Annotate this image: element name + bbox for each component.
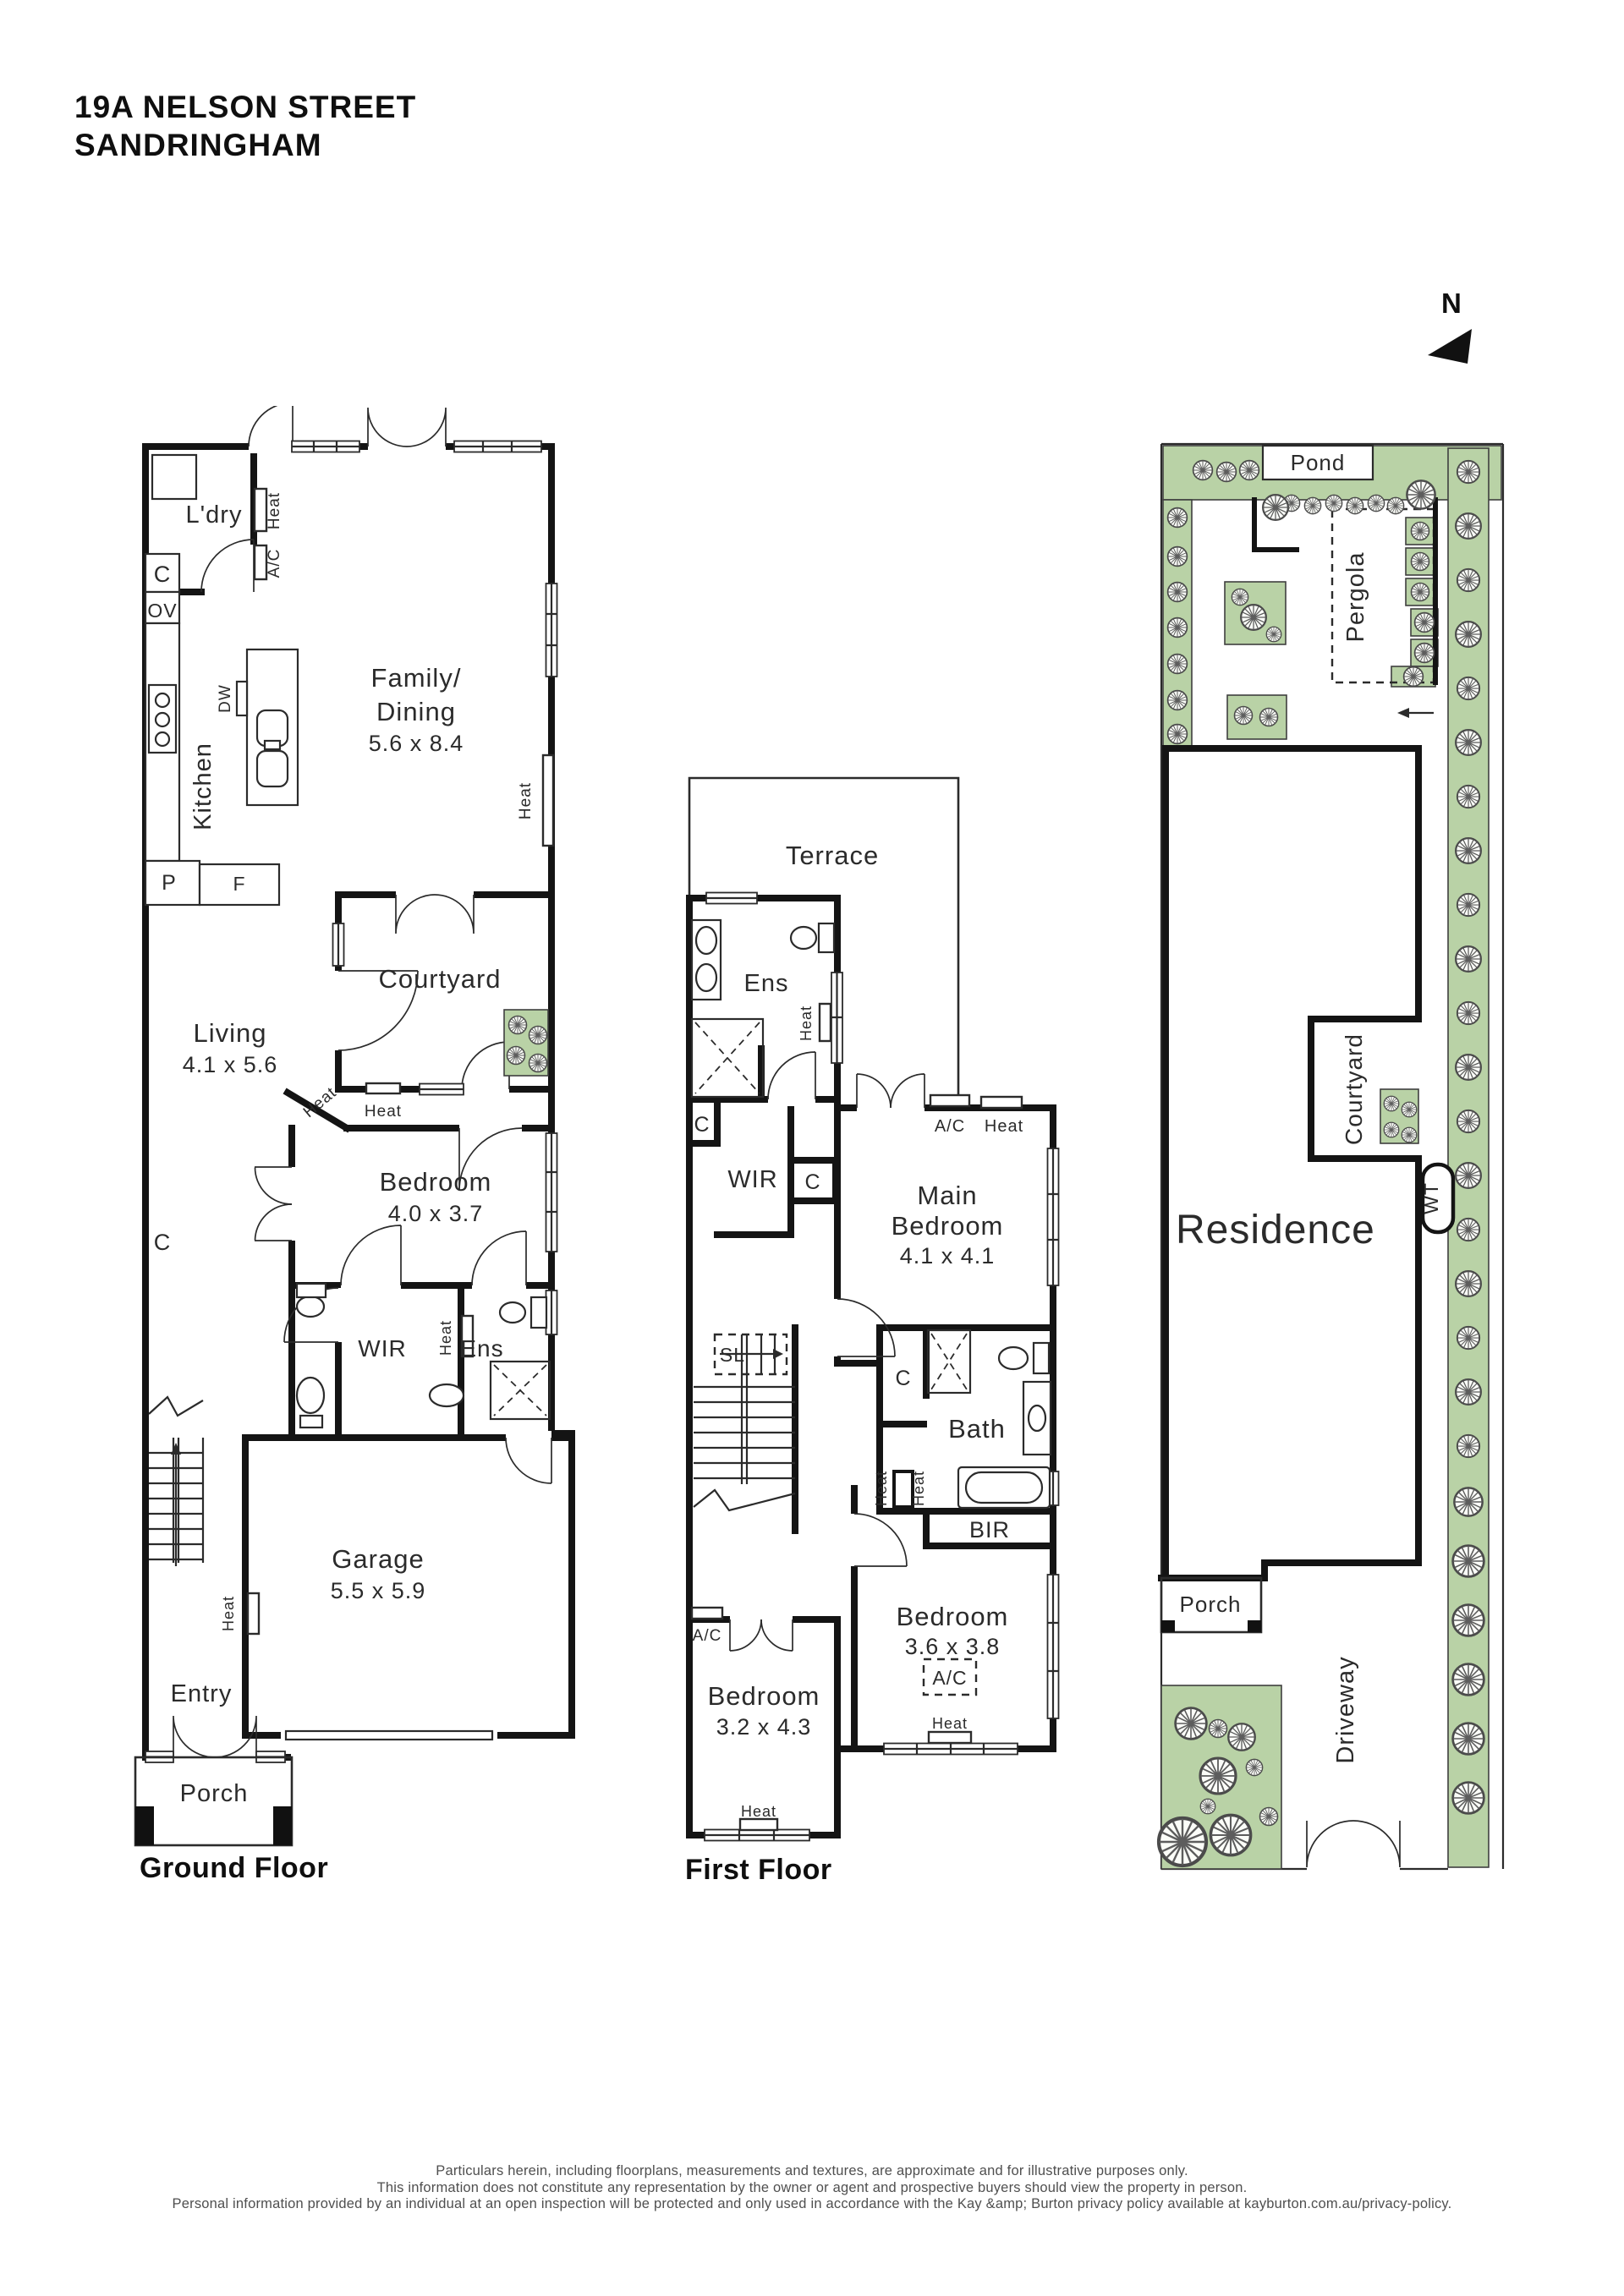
label-bedroom2-dims: 3.6 x 3.8 [905, 1634, 1001, 1659]
ground-floor-plan: L'dry Heat A/C C OV Kitchen DW P F Famil… [127, 406, 601, 1920]
label-heat-bedroom2: Heat [932, 1715, 968, 1732]
label-site-courtyard: Courtyard [1341, 1033, 1367, 1145]
label-heat-ens-g: Heat [437, 1320, 454, 1356]
label-family-dining-1: Family/ [371, 663, 462, 693]
label-residence: Residence [1176, 1208, 1375, 1252]
label-cupboard-landing: C [694, 1113, 710, 1137]
label-ac-main: A/C [935, 1117, 965, 1136]
label-living: Living [194, 1018, 267, 1048]
laundry-tub-icon [152, 455, 196, 499]
label-pond: Pond [1291, 450, 1346, 475]
label-heat-garage: Heat [220, 1596, 237, 1631]
disclaimer-line-2: This information does not constitute any… [0, 2180, 1624, 2197]
label-fridge: F [233, 873, 245, 895]
ens-vanity-icon [692, 920, 721, 1000]
label-heat-living: Heat [365, 1103, 402, 1121]
driveway-gate [1307, 1821, 1400, 1867]
label-ac-bedroom2: A/C [932, 1667, 967, 1689]
cooktop-icon [149, 685, 176, 753]
label-pergola: Pergola [1342, 552, 1369, 643]
label-kitchen: Kitchen [189, 743, 217, 830]
bath-vanity-icon [1023, 1382, 1051, 1455]
label-ens-g: Ens [460, 1335, 503, 1362]
label-bedroom3-dims: 3.2 x 4.3 [716, 1714, 812, 1740]
label-bir: BIR [969, 1517, 1010, 1543]
label-site-porch: Porch [1180, 1592, 1242, 1617]
label-heat-family: Heat [517, 782, 535, 819]
label-heat-bath: Heat [910, 1471, 927, 1506]
label-heat-bedroom3: Heat [741, 1803, 776, 1820]
label-heat-ens-f: Heat [798, 1006, 815, 1041]
label-bedroom2: Bedroom [897, 1602, 1009, 1631]
label-main-bedroom-2: Bedroom [892, 1211, 1004, 1241]
label-laundry: L'dry [186, 501, 243, 529]
courtyard-garden-bed [504, 1010, 548, 1076]
label-cupboard-hall: C [154, 1230, 172, 1255]
label-family-dining-dims: 5.6 x 8.4 [369, 731, 464, 756]
bath-toilet-icon [999, 1343, 1049, 1373]
disclaimer-line-3: Personal information provided by an indi… [0, 2196, 1624, 2213]
label-family-dining-2: Dining [376, 697, 456, 726]
label-garage-dims: 5.5 x 5.9 [331, 1578, 426, 1603]
label-driveway: Driveway [1332, 1656, 1359, 1763]
ens-shower-icon [692, 1019, 763, 1097]
address-line-1: 19A NELSON STREET [74, 88, 416, 126]
ens-toilet-icon [791, 923, 834, 952]
label-dishwasher: DW [217, 684, 234, 713]
label-bath: Bath [948, 1414, 1006, 1444]
label-porch-g: Porch [180, 1780, 249, 1807]
kitchen-island-icon [237, 649, 298, 805]
entry-arrow-icon [1397, 708, 1434, 718]
label-pantry: P [162, 871, 177, 895]
label-main-bedroom-1: Main [917, 1181, 977, 1210]
label-ens-f: Ens [744, 970, 789, 997]
label-bedroom3: Bedroom [708, 1681, 820, 1711]
label-garage: Garage [332, 1544, 424, 1574]
label-cupboard: C [154, 562, 172, 587]
disclaimer: Particulars herein, including floorplans… [0, 2163, 1624, 2213]
caption-ground-floor: Ground Floor [140, 1852, 328, 1884]
label-ac-laundry: A/C [266, 549, 283, 578]
north-indicator: N [1421, 288, 1514, 381]
shower-icon [491, 1362, 550, 1419]
label-cupboard-wir: C [804, 1170, 820, 1194]
first-floor-plan: Terrace Ens Heat C WIR C Main Bedroom 4.… [677, 761, 1074, 1903]
label-entry: Entry [171, 1680, 233, 1707]
garage-door [281, 1729, 497, 1742]
label-heat-main: Heat [985, 1117, 1023, 1136]
label-courtyard: Courtyard [378, 964, 501, 994]
floorplan-page: 19A NELSON STREET SANDRINGHAM N [0, 0, 1624, 2296]
bathtub-icon [958, 1467, 1050, 1508]
label-heat-laundry: Heat [266, 492, 283, 529]
north-label: N [1441, 288, 1462, 320]
label-terrace: Terrace [786, 841, 879, 870]
label-cupboard-bath: C [895, 1367, 911, 1390]
label-oven: OV [147, 600, 177, 622]
north-arrow-icon [1421, 323, 1514, 382]
label-bedroom-g-dims: 4.0 x 3.7 [388, 1201, 484, 1226]
label-wir-f: WIR [727, 1166, 777, 1193]
caption-first-floor: First Floor [685, 1854, 832, 1886]
label-heat-hall: Heat [873, 1471, 890, 1506]
basin-icon [297, 1378, 464, 1427]
page-title: 19A NELSON STREET SANDRINGHAM [74, 88, 416, 164]
label-main-bedroom-dims: 4.1 x 4.1 [900, 1243, 996, 1269]
address-line-2: SANDRINGHAM [74, 126, 416, 164]
label-water-tank: WT [1420, 1182, 1442, 1214]
label-living-dims: 4.1 x 5.6 [183, 1052, 278, 1077]
first-floor-doors [730, 1052, 924, 1651]
label-bedroom-g: Bedroom [380, 1167, 492, 1197]
disclaimer-line-1: Particulars herein, including floorplans… [0, 2163, 1624, 2180]
stairs-ground [149, 1397, 203, 1566]
label-skylight: SL [720, 1344, 745, 1366]
bath-shower-icon [928, 1330, 970, 1393]
residence-outline [1161, 748, 1418, 1578]
label-ac-bedroom3: A/C [693, 1627, 722, 1645]
site-plan: Pond Pergola Courtyard WT Residence Porc… [1150, 423, 1522, 1911]
label-wir-g: WIR [358, 1335, 406, 1362]
